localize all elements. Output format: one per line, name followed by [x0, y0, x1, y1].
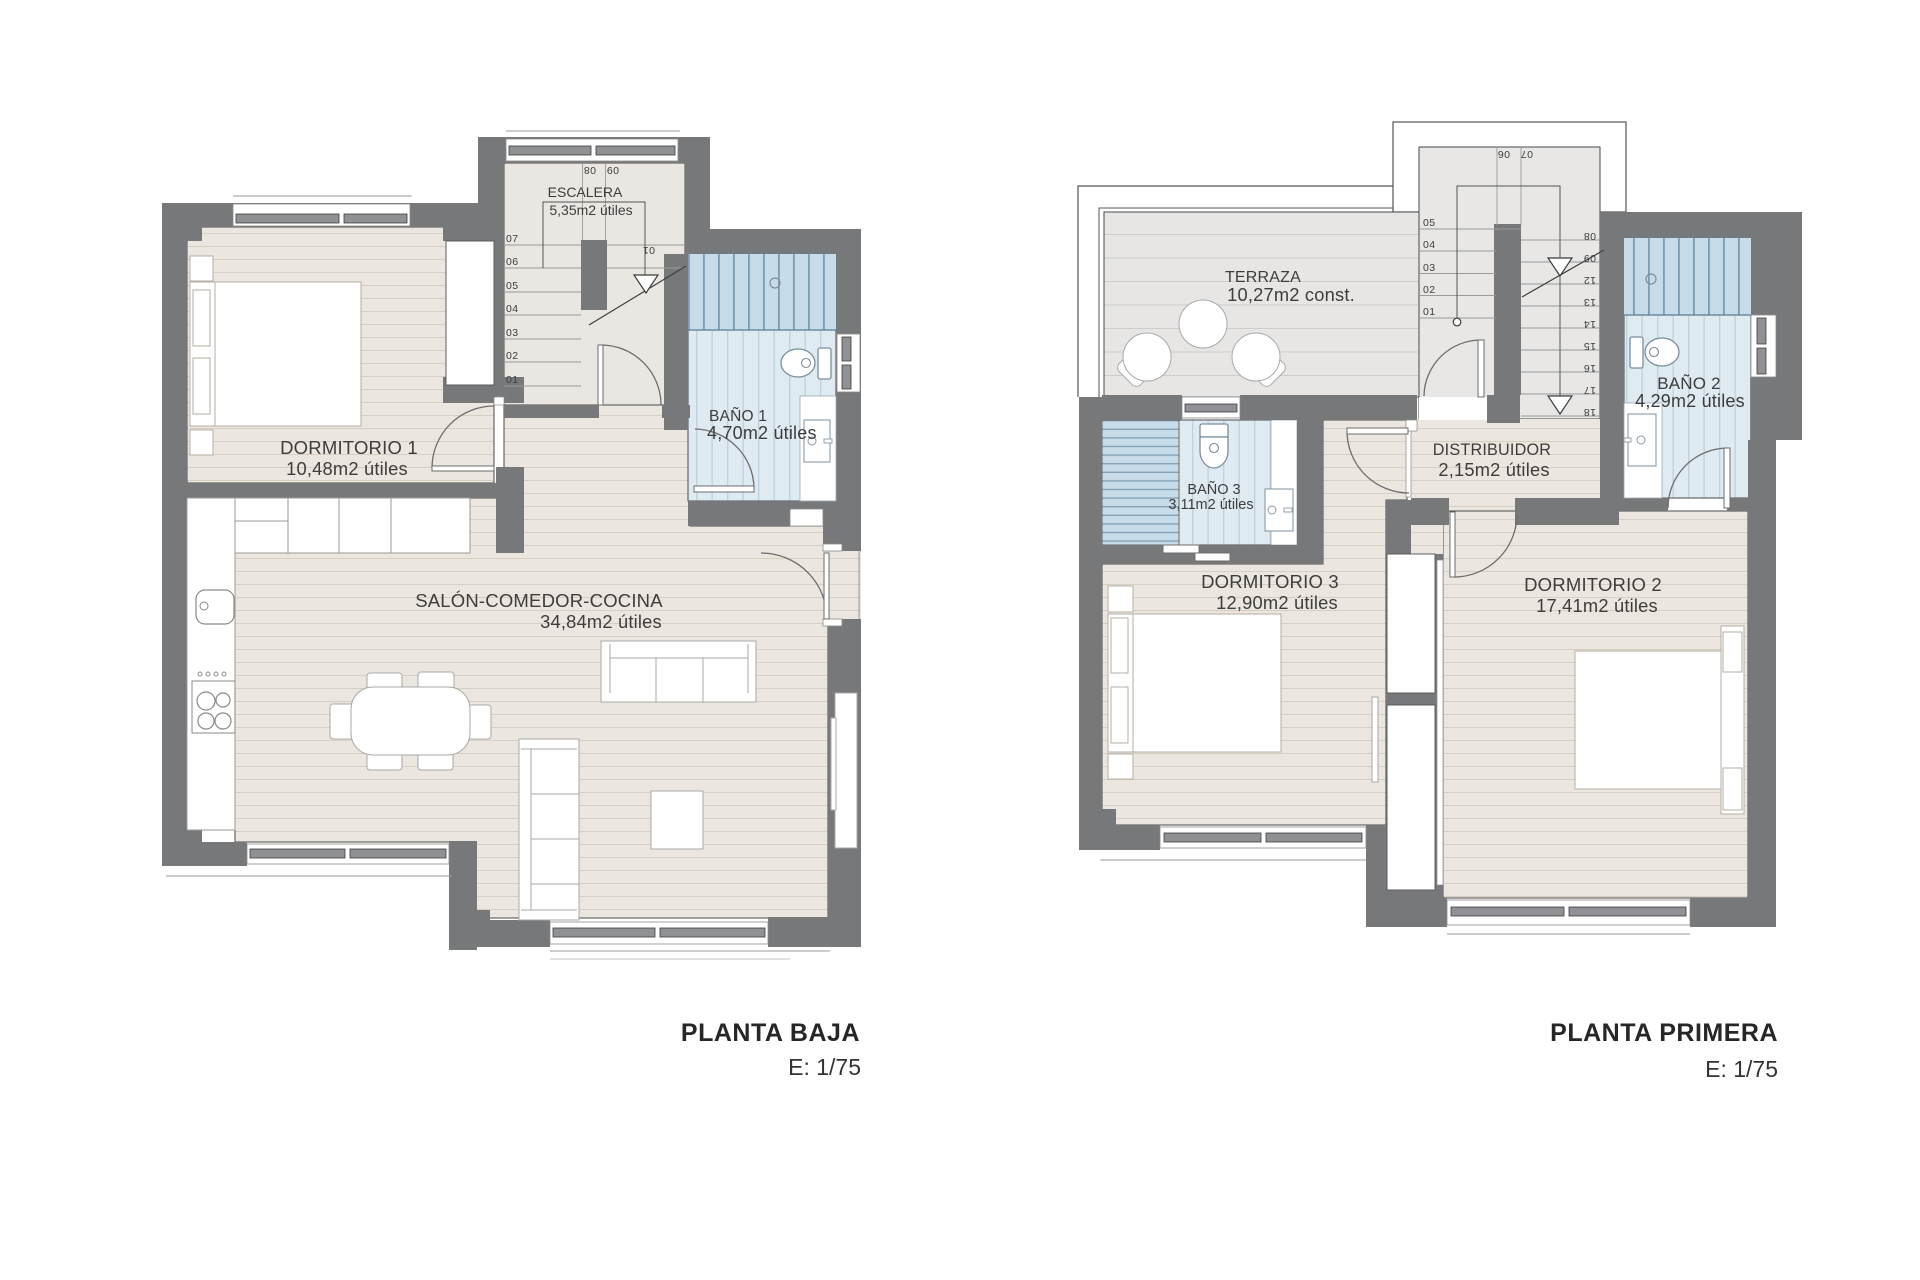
svg-text:17,41m2 útiles: 17,41m2 útiles — [1536, 595, 1658, 616]
svg-text:E: 1/75: E: 1/75 — [788, 1054, 861, 1080]
svg-text:01: 01 — [506, 374, 518, 386]
svg-text:4,29m2 útiles: 4,29m2 útiles — [1635, 391, 1745, 411]
svg-text:PLANTA BAJA: PLANTA BAJA — [681, 1019, 860, 1047]
svg-text:05: 05 — [506, 280, 518, 292]
svg-text:PLANTA PRIMERA: PLANTA PRIMERA — [1550, 1019, 1778, 1047]
svg-text:08: 08 — [1584, 230, 1596, 242]
svg-text:3,11m2 útiles: 3,11m2 útiles — [1168, 497, 1253, 513]
svg-text:03: 03 — [506, 327, 518, 339]
svg-text:E: 1/75: E: 1/75 — [1705, 1056, 1778, 1082]
svg-text:02: 02 — [1423, 284, 1435, 296]
svg-text:02: 02 — [506, 350, 518, 362]
svg-text:06: 06 — [1498, 148, 1510, 160]
svg-text:ESCALERA: ESCALERA — [548, 184, 623, 200]
svg-text:10,27m2 const.: 10,27m2 const. — [1227, 284, 1355, 305]
svg-text:4,70m2 útiles: 4,70m2 útiles — [707, 423, 817, 443]
svg-text:17: 17 — [1584, 384, 1596, 396]
svg-text:16: 16 — [1584, 362, 1596, 374]
svg-text:12: 12 — [1584, 274, 1596, 286]
svg-text:01: 01 — [643, 244, 655, 256]
svg-text:14: 14 — [1584, 318, 1596, 330]
svg-text:07: 07 — [1521, 148, 1533, 160]
svg-text:15: 15 — [1584, 340, 1596, 352]
svg-text:SALÓN-COMEDOR-COCINA: SALÓN-COMEDOR-COCINA — [415, 590, 663, 611]
svg-text:04: 04 — [506, 303, 518, 315]
svg-text:04: 04 — [1423, 239, 1435, 251]
svg-text:07: 07 — [506, 233, 518, 245]
svg-text:5,35m2 útiles: 5,35m2 útiles — [549, 202, 632, 218]
svg-text:DISTRIBUIDOR: DISTRIBUIDOR — [1433, 441, 1551, 459]
svg-text:09: 09 — [607, 164, 619, 176]
svg-text:DORMITORIO 1: DORMITORIO 1 — [280, 437, 418, 458]
svg-text:05: 05 — [1423, 217, 1435, 229]
svg-text:BAÑO 3: BAÑO 3 — [1187, 481, 1240, 498]
svg-text:01: 01 — [1423, 306, 1435, 318]
svg-text:DORMITORIO 2: DORMITORIO 2 — [1524, 574, 1662, 595]
svg-text:18: 18 — [1584, 406, 1596, 418]
svg-text:08: 08 — [584, 164, 596, 176]
svg-text:DORMITORIO 3: DORMITORIO 3 — [1201, 571, 1339, 592]
svg-text:12,90m2 útiles: 12,90m2 útiles — [1216, 592, 1338, 613]
svg-text:10,48m2 útiles: 10,48m2 útiles — [286, 458, 408, 479]
svg-text:34,84m2 útiles: 34,84m2 útiles — [540, 611, 662, 632]
svg-text:06: 06 — [506, 256, 518, 268]
svg-text:13: 13 — [1584, 296, 1596, 308]
svg-text:2,15m2 útiles: 2,15m2 útiles — [1438, 459, 1549, 480]
svg-text:03: 03 — [1423, 262, 1435, 274]
